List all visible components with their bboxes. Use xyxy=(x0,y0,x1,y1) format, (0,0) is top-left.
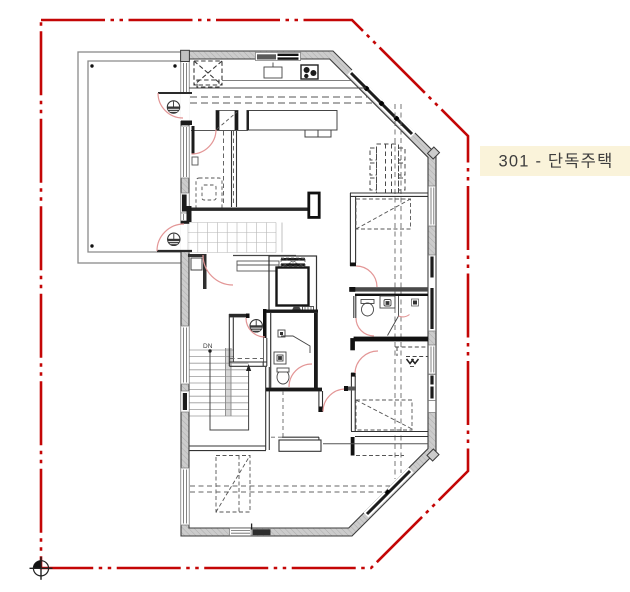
svg-text:301 - 단독주택: 301 - 단독주택 xyxy=(499,152,614,171)
svg-text:DN: DN xyxy=(203,343,213,350)
